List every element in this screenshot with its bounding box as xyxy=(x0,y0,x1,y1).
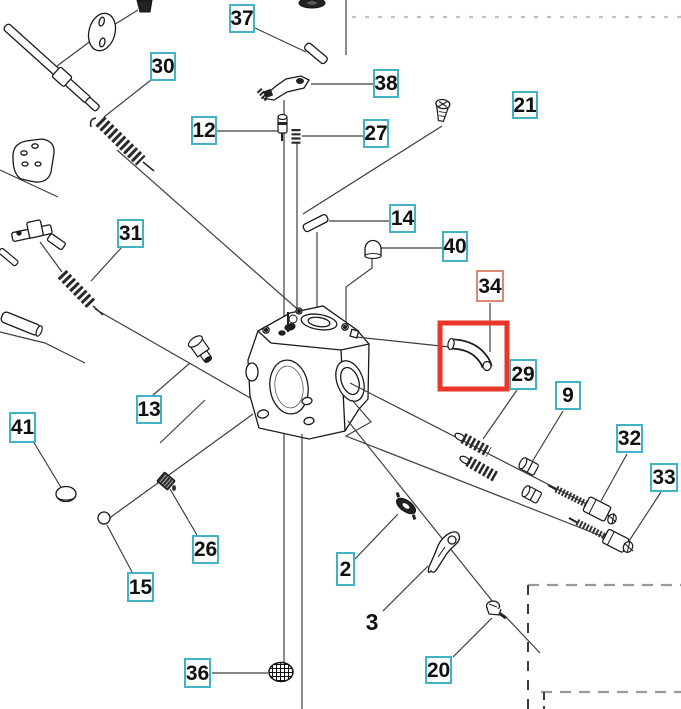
part-label-34-highlighted[interactable]: 34 xyxy=(476,270,504,302)
part-label-3[interactable]: 3 xyxy=(361,606,383,638)
part-2-clamp xyxy=(390,492,421,519)
part-15-ball xyxy=(98,512,110,524)
part-31-metering-lever xyxy=(11,220,66,250)
part-26-nut xyxy=(157,472,176,491)
gasket-plate xyxy=(13,139,54,182)
part-41-disc xyxy=(56,487,76,502)
part-label-14[interactable]: 14 xyxy=(389,204,416,233)
part-14-pin xyxy=(302,214,329,233)
part-36-screen xyxy=(269,663,293,682)
part-label-2[interactable]: 2 xyxy=(336,552,355,586)
part-label-13[interactable]: 13 xyxy=(136,395,162,424)
part-label-38[interactable]: 38 xyxy=(373,69,399,98)
carburetor-body xyxy=(246,306,369,439)
part-label-31[interactable]: 31 xyxy=(117,219,144,248)
part-label-12[interactable]: 12 xyxy=(191,116,217,145)
part-12-plunger xyxy=(278,115,287,142)
part-label-36[interactable]: 36 xyxy=(184,658,211,688)
part-21-screw xyxy=(434,99,451,122)
part-31-spring xyxy=(62,274,103,315)
part-34-elbow-fitting xyxy=(447,338,491,370)
part-label-32[interactable]: 32 xyxy=(616,424,643,453)
part-label-21[interactable]: 21 xyxy=(512,91,538,119)
part-9-collars xyxy=(517,457,542,504)
part-3-lever xyxy=(428,532,459,572)
part-label-29[interactable]: 29 xyxy=(509,359,537,390)
dashed-boundary xyxy=(528,585,681,709)
part-40-plug xyxy=(365,241,381,259)
part-screw-top-center xyxy=(299,0,325,8)
part-label-30[interactable]: 30 xyxy=(150,52,176,81)
part-label-26[interactable]: 26 xyxy=(192,535,219,564)
part-20-screw xyxy=(487,601,507,618)
part-label-27[interactable]: 27 xyxy=(363,119,389,148)
needle-left-edge xyxy=(0,248,19,267)
part-38-throttle-lever xyxy=(259,76,309,100)
part-label-20[interactable]: 20 xyxy=(425,656,452,684)
part-30-spring xyxy=(91,118,154,171)
part-label-15[interactable]: 15 xyxy=(127,572,154,602)
part-label-37[interactable]: 37 xyxy=(229,4,255,33)
part-label-9[interactable]: 9 xyxy=(555,381,581,410)
diagram-canvas xyxy=(0,0,681,709)
part-37-pin xyxy=(303,42,328,65)
parts-diagram: 37 30 12 38 27 21 31 14 40 34 29 9 32 33… xyxy=(0,0,681,709)
choke-shaft xyxy=(1,21,102,114)
part-label-41[interactable]: 41 xyxy=(9,412,36,443)
part-label-33[interactable]: 33 xyxy=(650,463,678,492)
part-screw-top-left xyxy=(137,0,152,12)
choke-plate-disc xyxy=(85,10,120,53)
part-label-40[interactable]: 40 xyxy=(442,231,468,262)
part-13-fitting xyxy=(187,334,216,366)
